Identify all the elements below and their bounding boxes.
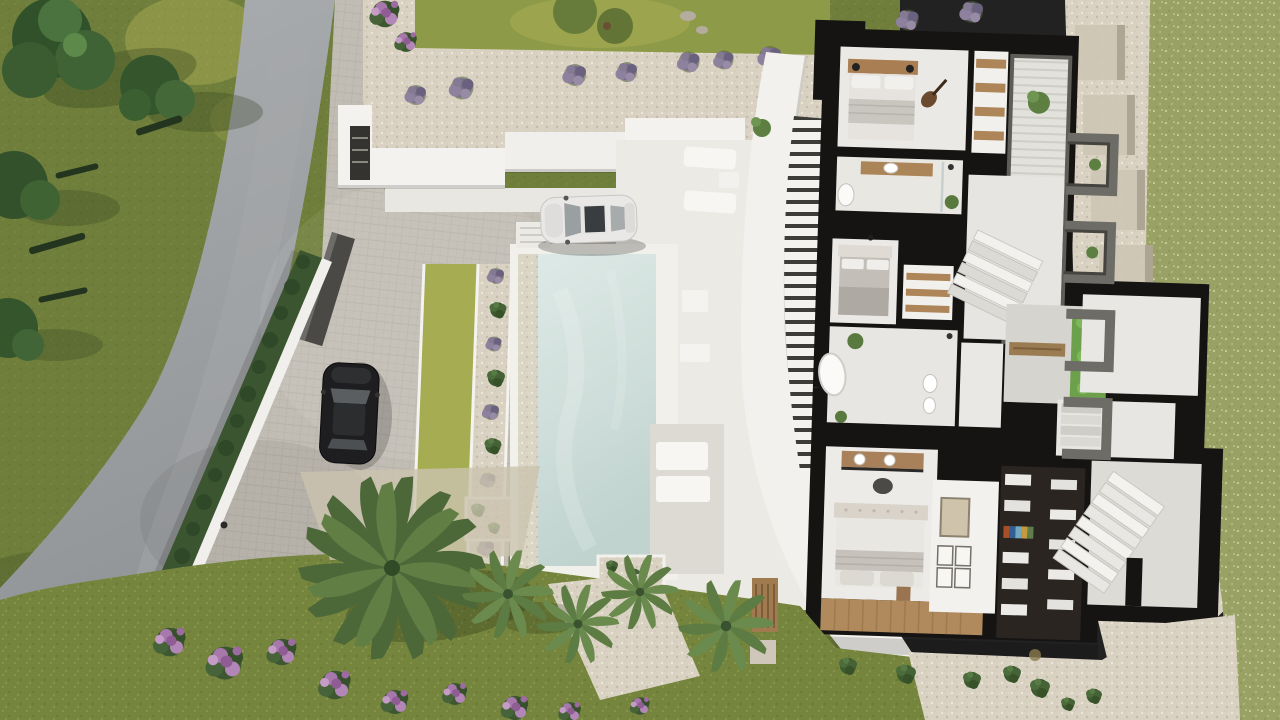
wardrobe-2 bbox=[902, 265, 954, 321]
aerial-villa-render bbox=[0, 0, 1280, 720]
master-bathroom bbox=[814, 326, 957, 426]
master-headboard bbox=[834, 503, 928, 521]
windshield bbox=[564, 203, 581, 238]
bathroom-1 bbox=[835, 156, 963, 214]
toilet bbox=[838, 184, 855, 206]
bidet bbox=[923, 397, 935, 413]
bedside-crate bbox=[896, 587, 910, 601]
wardrobe-1 bbox=[971, 51, 1008, 154]
large-frame bbox=[940, 498, 969, 537]
bedroom-1 bbox=[837, 47, 968, 151]
toilet bbox=[923, 374, 938, 392]
open-sunroof bbox=[584, 206, 605, 233]
entrance-gate bbox=[350, 126, 370, 180]
bedroom-2 bbox=[830, 233, 899, 324]
mid-corridor bbox=[959, 342, 1004, 427]
colored-books bbox=[1003, 526, 1033, 539]
master-bedroom bbox=[821, 446, 938, 601]
rocks bbox=[680, 11, 696, 21]
right-room-upper bbox=[1080, 294, 1201, 396]
picture-wall bbox=[929, 480, 999, 614]
black-car bbox=[317, 362, 381, 465]
side-table bbox=[719, 172, 739, 188]
windshield bbox=[330, 388, 371, 404]
white-car bbox=[540, 193, 638, 245]
sunken-lounger-1 bbox=[656, 442, 708, 470]
sunken-lounger-2 bbox=[656, 476, 710, 502]
gate-lamp bbox=[221, 522, 228, 529]
